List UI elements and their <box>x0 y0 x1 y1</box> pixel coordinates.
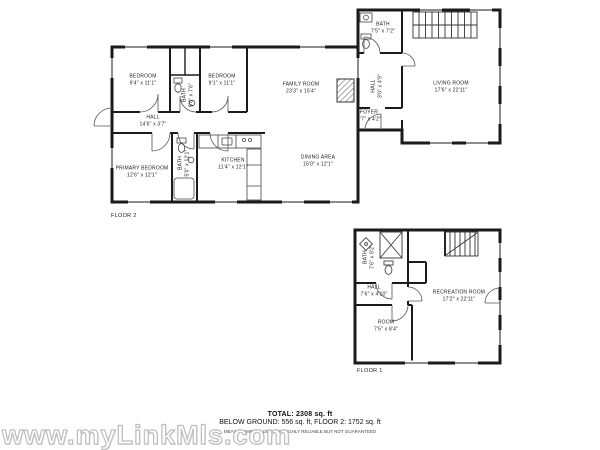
fireplace-icon <box>337 79 354 102</box>
room-name: FAMILY ROOM <box>283 82 319 89</box>
room-label-bath-main: BATH 5'0" x 12'1" <box>178 149 191 176</box>
room-dims: 7'7" x 4'2" <box>357 116 381 123</box>
room-name: KITCHEN <box>218 158 248 165</box>
room-dims: 9'1" x 11'1" <box>208 80 235 87</box>
room-dims: 23'3" x 15'4" <box>283 88 319 95</box>
bath-fixtures-floor2 <box>174 13 372 199</box>
floor1-label: FLOOR 1 <box>357 368 383 374</box>
room-name: PRIMARY BEDROOM <box>116 166 169 173</box>
room-dims: 7'5" x 7'2" <box>371 28 395 35</box>
room-label-room: ROOM 7'5" x 8'4" <box>374 320 398 333</box>
room-label-kitchen: KITCHEN 11'4" x 12'1" <box>218 158 248 171</box>
room-label-recreation-room: RECREATION ROOM 17'2" x 22'11" <box>433 290 485 303</box>
room-label-hall-floor1: HALL 7'6" x 4'10" <box>360 285 387 298</box>
room-label-bath-upper: BATH 7'5" x 7'2" <box>371 22 395 35</box>
room-name: BEDROOM <box>208 74 235 81</box>
stairs-icon-floor1 <box>445 232 478 256</box>
room-dims: 5'0" x 12'1" <box>184 149 191 176</box>
stairs-icon-floor2 <box>413 12 477 38</box>
room-label-hall-upper: HALL 3'0" x 4'9" <box>371 74 384 98</box>
room-dims: 7'6" x 9'2" <box>369 245 376 269</box>
room-name: RECREATION ROOM <box>433 290 485 297</box>
floor2-walls <box>112 10 500 202</box>
watermark-text: www.myLinkMls.com <box>2 420 291 450</box>
room-dims: 17'6" x 22'11" <box>433 87 469 94</box>
floor2-label: FLOOR 2 <box>111 213 137 219</box>
room-dims: 11'4" x 12'1" <box>218 164 248 171</box>
room-label-family-room: FAMILY ROOM 23'3" x 15'4" <box>283 82 319 95</box>
floorplan-page: BEDROOM 9'4" x 11'1" BATH 5'0" x 7'6" BE… <box>0 0 600 450</box>
room-dims: 15'0" x 12'1" <box>301 161 335 168</box>
room-label-hall-floor2: HALL 14'6" x 3'7" <box>139 115 166 128</box>
room-label-living-room: LIVING ROOM 17'6" x 22'11" <box>433 81 469 94</box>
room-label-primary-bedroom: PRIMARY BEDROOM 12'6" x 12'1" <box>116 166 169 179</box>
room-label-bath-small: BATH 5'0" x 7'6" <box>182 83 195 107</box>
room-name: FOYER <box>357 110 381 117</box>
room-dims: 17'2" x 22'11" <box>433 296 485 303</box>
room-label-dining-area: DINING AREA 15'0" x 12'1" <box>301 155 335 168</box>
room-dims: 12'6" x 12'1" <box>116 172 169 179</box>
floorplan-drawing <box>0 0 600 450</box>
room-dims: 14'6" x 3'7" <box>139 121 166 128</box>
room-name: LIVING ROOM <box>433 81 469 88</box>
room-dims: 9'4" x 11'1" <box>129 80 156 87</box>
room-label-bedroom-1: BEDROOM 9'4" x 11'1" <box>129 74 156 87</box>
room-label-bath-floor1: BATH 7'6" x 9'2" <box>363 245 376 269</box>
room-label-bedroom-2: BEDROOM 9'1" x 11'1" <box>208 74 235 87</box>
room-dims: 3'0" x 4'9" <box>377 74 384 98</box>
total-area-text: TOTAL: 2308 sq. ft <box>0 411 600 418</box>
room-name: DINING AREA <box>301 155 335 162</box>
shower-icon <box>380 232 402 258</box>
room-dims: 5'0" x 7'6" <box>188 83 195 107</box>
room-dims: 7'5" x 8'4" <box>374 326 398 333</box>
room-name: BEDROOM <box>129 74 156 81</box>
room-label-foyer: FOYER 7'7" x 4'2" <box>357 110 381 123</box>
room-dims: 7'6" x 4'10" <box>360 291 387 298</box>
